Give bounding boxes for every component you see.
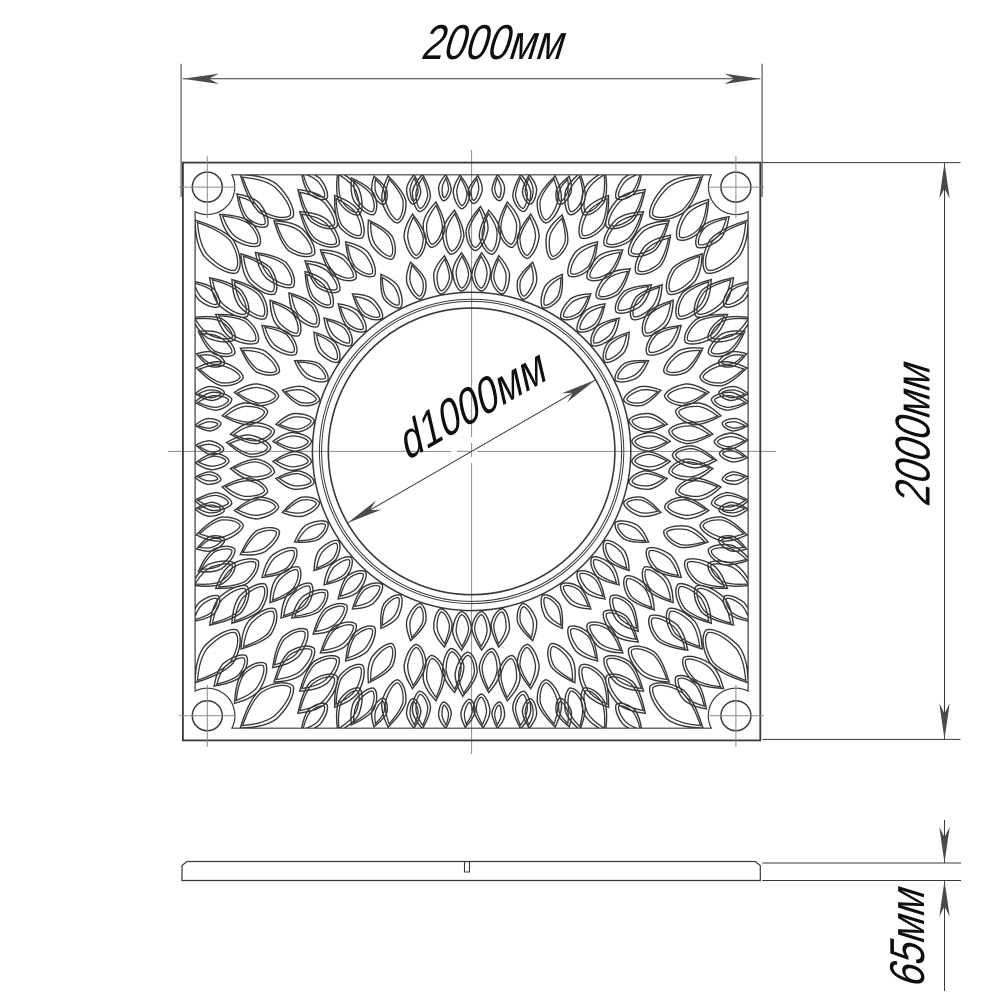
svg-text:2000мм: 2000мм <box>885 353 940 511</box>
svg-text:2000мм: 2000мм <box>417 15 575 70</box>
svg-text:65мм: 65мм <box>880 878 935 992</box>
